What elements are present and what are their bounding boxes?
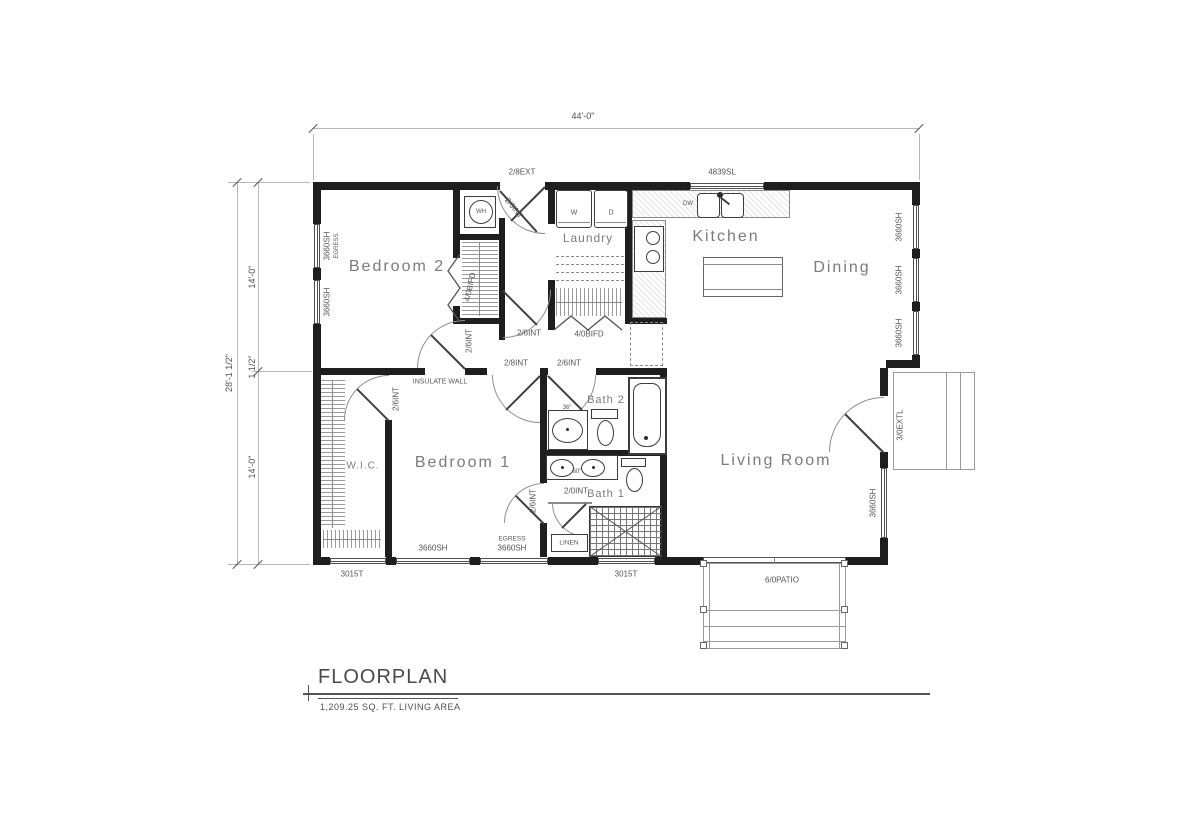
deck-step <box>703 626 846 627</box>
size-label: 2/8INT <box>504 359 528 368</box>
window-3660sh <box>881 468 887 538</box>
wall-right-lower <box>880 368 888 396</box>
drawing-subtitle: 1,209.25 SQ. FT. LIVING AREA <box>320 702 461 712</box>
closet-rod-wic-left <box>321 380 345 528</box>
size-label: 2/6INT <box>392 387 401 411</box>
size-label: EGRESS <box>498 536 525 543</box>
wall-bottom <box>386 557 396 565</box>
wall-wh-closet <box>453 234 505 240</box>
washer-line <box>558 222 590 223</box>
burner <box>646 231 660 245</box>
dim-label-wall-thickness: 1 1/2" <box>247 355 257 378</box>
bathtub-drain <box>644 436 648 440</box>
wall-jog <box>886 360 920 368</box>
size-label: 4839SL <box>708 168 736 177</box>
deck-post <box>700 606 707 613</box>
washer-label: W <box>571 210 578 217</box>
dim-ext-line <box>313 134 314 180</box>
wall-bottom <box>470 557 480 565</box>
dim-ext-line <box>228 182 310 183</box>
wall-wh-closet <box>499 218 505 238</box>
closet-rod-line <box>323 539 381 540</box>
window-3660sh <box>396 558 470 564</box>
size-label: 3015T <box>615 570 638 579</box>
deck-step <box>703 641 846 642</box>
size-label: 3660SH <box>869 489 878 518</box>
room-label-living-room: Living Room <box>721 452 832 470</box>
closet-rod-line <box>556 302 622 303</box>
deck-post <box>841 560 848 567</box>
size-label: INSULATE WALL <box>413 379 467 386</box>
window-3660sh <box>913 311 919 355</box>
bath2-vanity-size-label: 36" <box>563 405 572 411</box>
burner <box>646 250 660 264</box>
window-3660sh <box>913 258 919 302</box>
wall-mid <box>540 368 548 375</box>
dim-line-top <box>313 128 920 129</box>
wall-mid <box>465 368 487 375</box>
stoop-step <box>960 372 961 470</box>
deck-post <box>700 642 707 649</box>
kitchen-sink <box>697 193 720 218</box>
deck-post <box>841 606 848 613</box>
deck-rail <box>709 563 710 649</box>
size-label: 2/6INT <box>517 329 541 338</box>
dishwasher-label: DW <box>683 201 693 207</box>
dim-ext-line <box>252 371 312 372</box>
wall-bath <box>540 523 547 557</box>
size-label: 3660SH <box>323 288 332 317</box>
dim-label-overall-depth: 28'-1 1/2" <box>224 354 234 392</box>
size-label: 3660SH <box>419 544 448 553</box>
wall-right <box>912 302 920 311</box>
room-label-laundry: Laundry <box>563 231 613 245</box>
window-3660sh-egress <box>480 558 548 564</box>
deck-rail <box>839 563 840 649</box>
wall-top <box>764 182 920 190</box>
wall-left <box>313 324 321 565</box>
island-edge <box>703 289 783 290</box>
wall-left <box>313 268 321 280</box>
deck-post <box>700 560 707 567</box>
pantry-shelf <box>556 264 624 265</box>
deck-edge <box>703 610 846 611</box>
size-label: 2/8EXT <box>509 168 536 177</box>
pantry-shelf <box>556 256 624 257</box>
linen-label: LINEN <box>559 540 578 547</box>
dryer-line <box>596 222 626 223</box>
pantry-shelf <box>556 280 624 281</box>
dim-label-lower-depth: 14'-0" <box>247 456 257 479</box>
title-underline <box>318 698 458 699</box>
wall-left <box>313 182 321 224</box>
wall-bedroom2-closet <box>453 182 460 240</box>
size-label: EGRESS <box>334 233 340 258</box>
size-label: 3/0EXTL <box>896 409 905 440</box>
dim-line-left-outer <box>237 182 238 565</box>
room-label-dining: Dining <box>813 259 870 277</box>
bath1-vanity-size-label: 60" <box>573 469 582 475</box>
bath2-toilet-tank <box>591 409 618 419</box>
wall-right-lower <box>880 452 888 468</box>
wall-top <box>313 182 500 190</box>
entry-stoop <box>893 372 975 470</box>
room-label-bedroom-1: Bedroom 1 <box>415 454 511 472</box>
water-heater-label: WH <box>476 209 486 215</box>
closet-rod-line <box>332 380 333 528</box>
size-label: 3660SH <box>498 544 527 553</box>
stoop-step <box>946 372 947 470</box>
bath1-faucet <box>592 466 595 469</box>
floorplan-canvas: 44'-0" 28'-1 1/2" 14'-0" 1 1/2" 14'-0" B… <box>0 0 1200 818</box>
dim-label-upper-depth: 14'-0" <box>247 266 257 289</box>
bath1-faucet <box>561 466 564 469</box>
bath2-toilet-bowl <box>597 420 614 446</box>
deck-post <box>841 642 848 649</box>
room-label-bath-2: Bath 2 <box>587 394 625 406</box>
window-4839sl <box>690 183 764 189</box>
window-3015t <box>598 558 655 564</box>
dryer-label: D <box>608 210 613 217</box>
size-label: 6/0PATIO <box>765 576 799 585</box>
bath1-toilet-tank <box>621 458 646 467</box>
dim-ext-line <box>228 564 310 565</box>
shower-x-mark <box>589 506 662 557</box>
island-edge <box>703 264 783 265</box>
wall-bottom <box>548 557 598 565</box>
size-label: 3660SH <box>895 213 904 242</box>
drawing-title: FLOORPLAN <box>318 666 448 689</box>
size-label: 3660SH <box>895 266 904 295</box>
size-label: 2/6INT <box>529 489 538 513</box>
wall-right <box>912 182 920 205</box>
wall-laundry <box>548 182 555 224</box>
bath1-toilet-bowl <box>626 468 643 492</box>
bath2-faucet <box>566 428 569 431</box>
wall-bottom <box>846 557 888 565</box>
window-3660sh <box>314 280 320 324</box>
dim-ext-line <box>919 134 920 180</box>
room-label-wic: W.I.C. <box>346 461 379 472</box>
kitchen-island <box>703 257 783 297</box>
room-label-bedroom-2: Bedroom 2 <box>349 258 445 276</box>
wall-mid <box>596 368 667 375</box>
wall-wic <box>385 420 392 557</box>
size-label: 3015T <box>341 570 364 579</box>
room-label-kitchen: Kitchen <box>692 228 759 246</box>
size-label: 2/0INT <box>564 487 588 496</box>
wall-right <box>912 249 920 258</box>
size-label: 3660SH <box>895 319 904 348</box>
window-3660sh <box>913 205 919 249</box>
size-label: 3660SH <box>323 232 332 261</box>
window-3660sh-egress <box>314 224 320 268</box>
dim-label-overall-width: 44'-0" <box>572 111 595 121</box>
size-label: 2/6INT <box>465 329 474 353</box>
size-label: 4/0BIFD <box>574 330 603 339</box>
bifold-door-bedroom2-closet <box>446 252 462 322</box>
title-line <box>303 693 930 695</box>
wall-mid <box>313 368 425 375</box>
dim-line-left-inner <box>258 182 259 565</box>
closet-rod-line <box>479 242 480 316</box>
wall-top <box>545 182 690 190</box>
wall-bottom <box>313 557 330 565</box>
room-label-bath-1: Bath 1 <box>587 488 625 500</box>
window-3015t <box>330 558 386 564</box>
size-label: 2/6INT <box>557 359 581 368</box>
refrigerator <box>630 322 663 366</box>
pantry-shelf <box>556 272 624 273</box>
kitchen-sink <box>721 193 744 218</box>
